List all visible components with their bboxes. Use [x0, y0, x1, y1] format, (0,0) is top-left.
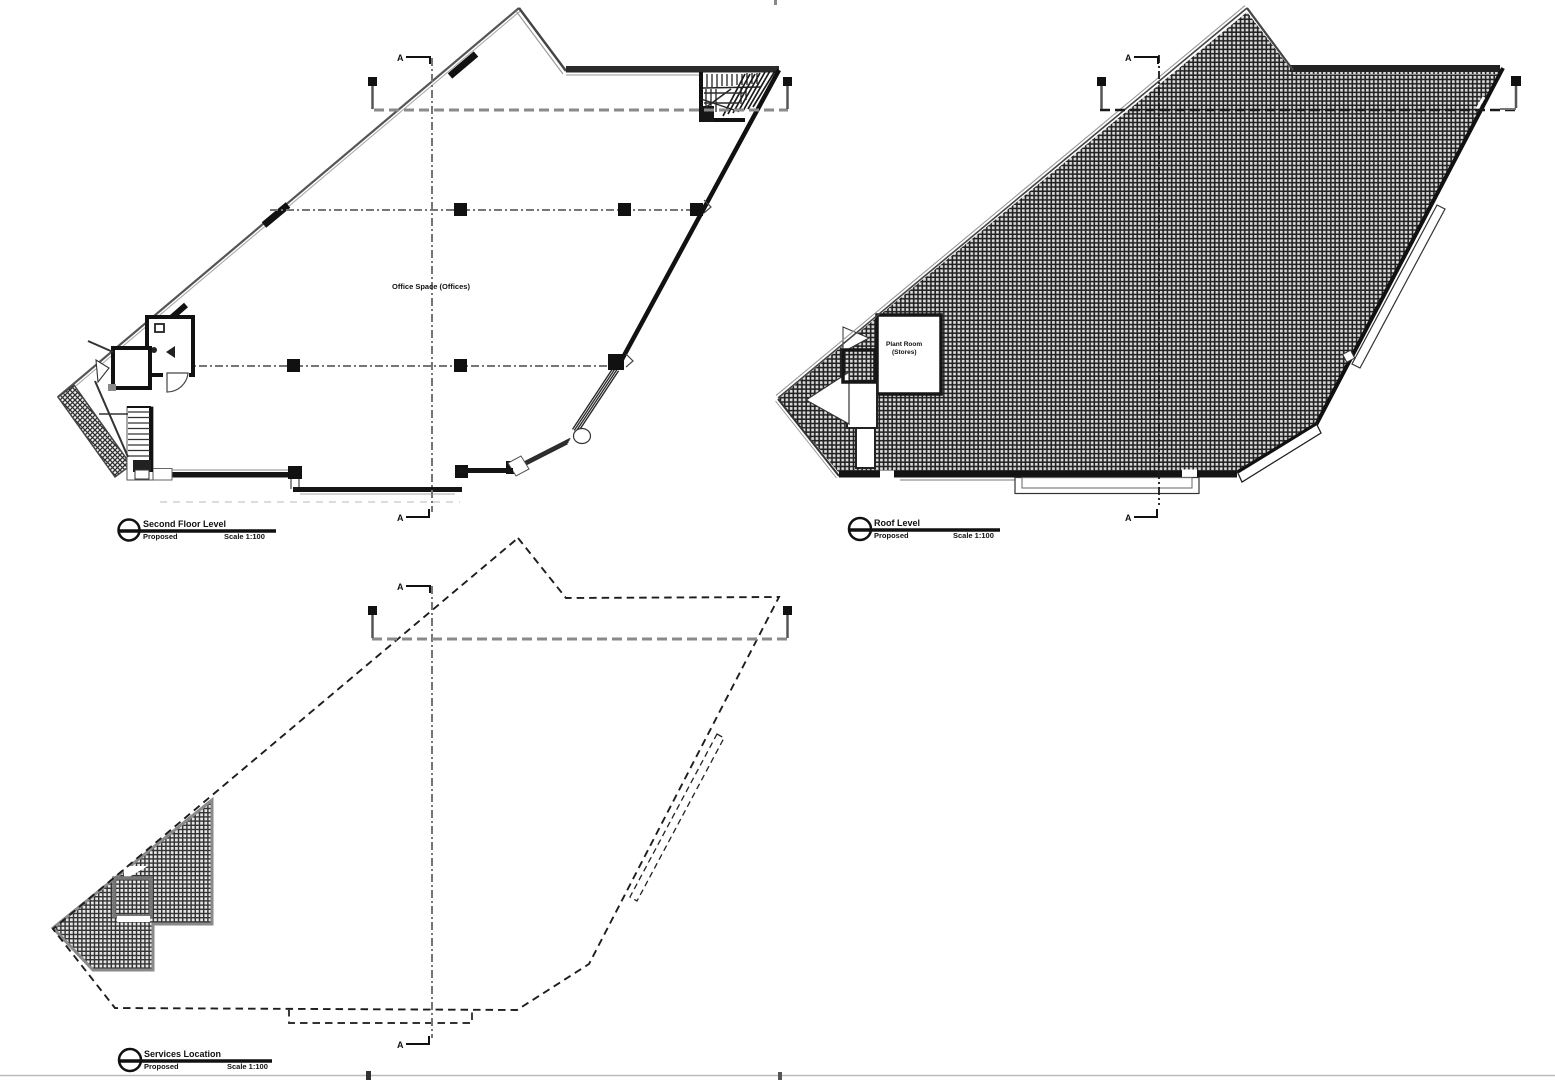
svg-text:A: A — [1125, 53, 1132, 63]
svg-text:Plant Room: Plant Room — [886, 341, 922, 348]
svg-text:Services Location: Services Location — [144, 1049, 221, 1059]
svg-text:Office Space (Offices): Office Space (Offices) — [392, 282, 470, 291]
svg-text:A: A — [397, 513, 404, 523]
svg-text:A: A — [1125, 513, 1132, 523]
svg-text:A: A — [397, 53, 404, 63]
svg-text:Proposed: Proposed — [874, 531, 909, 540]
svg-text:Proposed: Proposed — [144, 1062, 179, 1071]
svg-text:Second Floor Level: Second Floor Level — [143, 519, 226, 529]
svg-text:(Stores): (Stores) — [892, 349, 917, 356]
svg-text:Scale 1:100: Scale 1:100 — [224, 532, 265, 541]
svg-text:A: A — [397, 1040, 404, 1050]
svg-text:Proposed: Proposed — [143, 532, 178, 541]
svg-text:Scale 1:100: Scale 1:100 — [227, 1062, 268, 1071]
svg-text:A: A — [397, 582, 404, 592]
svg-text:Scale 1:100: Scale 1:100 — [953, 531, 994, 540]
svg-text:Roof Level: Roof Level — [874, 518, 920, 528]
